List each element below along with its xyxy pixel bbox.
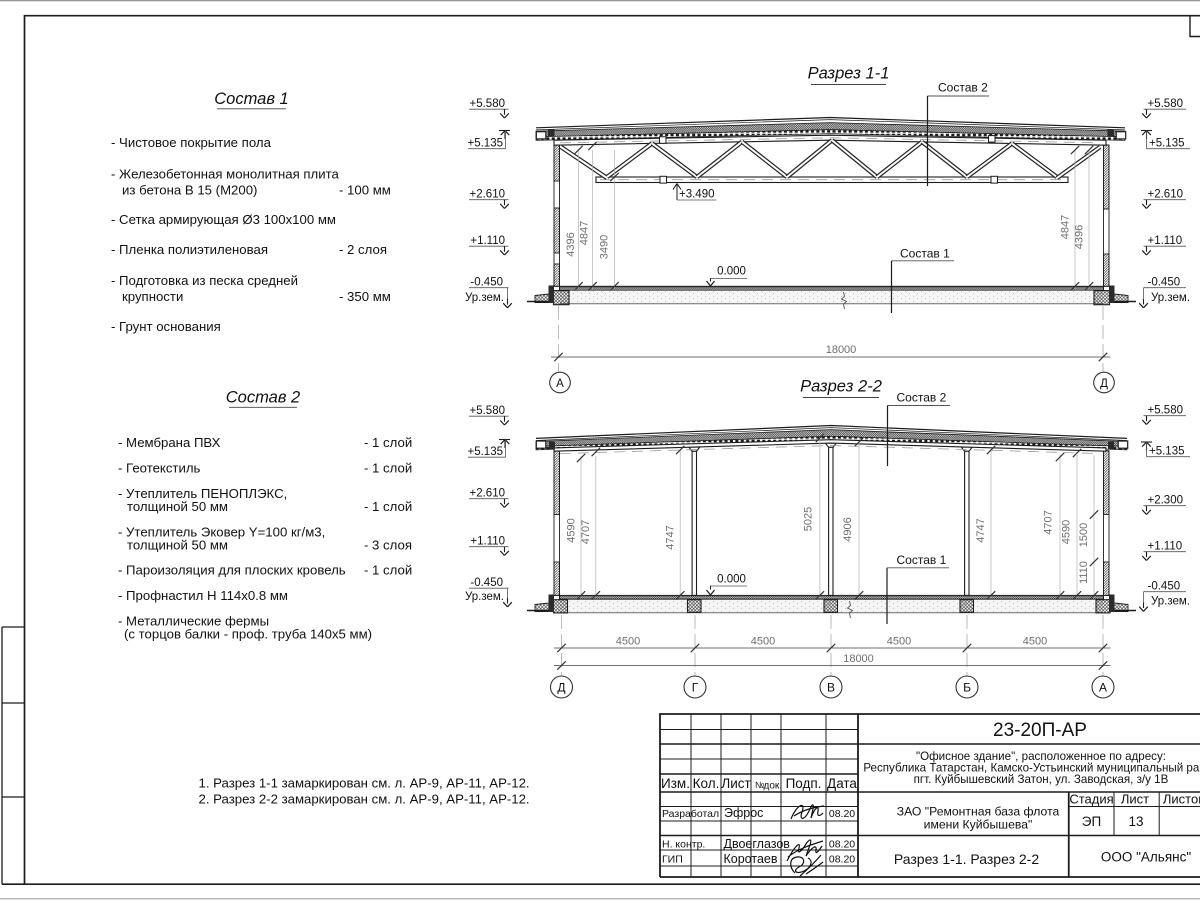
- svg-text:- 1 слой: - 1 слой: [364, 461, 412, 476]
- svg-text:- Грунт основания: - Грунт основания: [111, 319, 221, 334]
- svg-text:Изм.: Изм.: [661, 776, 690, 791]
- svg-text:- 100 мм: - 100 мм: [339, 183, 391, 198]
- svg-text:4396: 4396: [565, 232, 577, 256]
- svg-text:Разрез 2-2: Разрез 2-2: [800, 378, 882, 396]
- svg-text:+2.300: +2.300: [1148, 495, 1184, 507]
- svg-text:-0.450: -0.450: [1148, 277, 1181, 289]
- svg-text:Состав 1: Состав 1: [214, 90, 288, 108]
- svg-text:Стадия: Стадия: [1069, 792, 1113, 807]
- svg-text:Н. контр.: Н. контр.: [662, 839, 705, 851]
- svg-text:-0.450: -0.450: [470, 577, 503, 589]
- svg-text:- 1 слой: - 1 слой: [364, 563, 412, 578]
- svg-text:4747: 4747: [975, 518, 987, 542]
- svg-text:-0.450: -0.450: [470, 277, 503, 289]
- svg-text:Разработал: Разработал: [662, 808, 719, 820]
- svg-text:4590: 4590: [566, 518, 578, 542]
- svg-text:- 3 слоя: - 3 слоя: [364, 537, 412, 552]
- svg-text:1500: 1500: [1078, 523, 1090, 547]
- svg-text:- Подготовка из песка средней: - Подготовка из песка средней: [111, 273, 298, 288]
- svg-text:+1.110: +1.110: [1148, 235, 1183, 247]
- svg-text:+1.110: +1.110: [1148, 541, 1183, 553]
- svg-text:+2.610: +2.610: [470, 189, 506, 201]
- svg-text:+1.110: +1.110: [470, 235, 505, 247]
- svg-text:4500: 4500: [616, 636, 640, 648]
- svg-text:+1.110: +1.110: [470, 536, 505, 548]
- svg-text:Состав 1: Состав 1: [897, 553, 947, 567]
- svg-text:Г: Г: [692, 680, 699, 694]
- svg-text:4500: 4500: [887, 636, 911, 648]
- svg-text:08.20: 08.20: [829, 808, 855, 820]
- svg-text:Дата: Дата: [827, 776, 857, 791]
- svg-text:Двоеглазов: Двоеглазов: [724, 837, 791, 851]
- svg-text:- 1 слой: - 1 слой: [364, 499, 412, 514]
- svg-text:док.: док.: [764, 781, 783, 792]
- svg-text:(с торцов балки - проф. труба: (с торцов балки - проф. труба 140х5 мм): [124, 626, 372, 641]
- svg-text:18000: 18000: [826, 344, 857, 356]
- svg-text:1110: 1110: [1078, 561, 1090, 584]
- svg-text:3490: 3490: [599, 235, 611, 259]
- svg-text:Кол.: Кол.: [693, 776, 720, 791]
- svg-text:+3.490: +3.490: [679, 189, 715, 201]
- svg-text:08.20: 08.20: [829, 854, 855, 866]
- svg-text:+5.580: +5.580: [1148, 98, 1184, 110]
- svg-text:+5.135: +5.135: [1149, 446, 1185, 458]
- svg-text:- 1 слой: - 1 слой: [364, 435, 412, 450]
- svg-text:+5.135: +5.135: [1149, 138, 1185, 150]
- svg-text:Коротаев: Коротаев: [724, 852, 778, 866]
- svg-text:4500: 4500: [1023, 636, 1047, 648]
- svg-text:Листов: Листов: [1163, 792, 1200, 807]
- svg-text:08.20: 08.20: [829, 839, 855, 851]
- svg-text:ЗАО "Ремонтная база флота: ЗАО "Ремонтная база флота: [897, 805, 1060, 819]
- svg-text:- Геотекстиль: - Геотекстиль: [118, 461, 201, 476]
- svg-text:В: В: [827, 680, 835, 694]
- svg-text:ГИП: ГИП: [662, 854, 683, 866]
- svg-text:Эфрос: Эфрос: [724, 806, 763, 820]
- svg-text:+5.580: +5.580: [1148, 405, 1184, 417]
- svg-text:4747: 4747: [665, 525, 677, 549]
- svg-text:- 2 слоя: - 2 слоя: [339, 242, 387, 257]
- svg-text:4396: 4396: [1074, 225, 1086, 249]
- svg-text:4500: 4500: [751, 636, 775, 648]
- svg-text:толщиной 50 мм: толщиной 50 мм: [127, 537, 228, 552]
- svg-text:+5.580: +5.580: [470, 98, 506, 110]
- svg-text:Подп.: Подп.: [786, 776, 822, 791]
- svg-text:- Пленка полиэтиленовая: - Пленка полиэтиленовая: [111, 242, 268, 257]
- svg-text:имени Куйбышева": имени Куйбышева": [924, 818, 1033, 832]
- svg-text:пгт. Куйбышевский Затон, ул. З: пгт. Куйбышевский Затон, ул. Заводская, …: [914, 773, 1169, 786]
- svg-text:ООО "Альянс": ООО "Альянс": [1101, 850, 1191, 865]
- svg-text:5025: 5025: [803, 507, 815, 531]
- svg-text:- Пароизоляция для плоских кро: - Пароизоляция для плоских кровель: [118, 563, 346, 578]
- svg-text:крупности: крупности: [122, 289, 183, 304]
- svg-text:4906: 4906: [842, 517, 854, 541]
- svg-text:18000: 18000: [843, 653, 874, 665]
- svg-text:0.000: 0.000: [717, 574, 746, 586]
- svg-text:Ур.зем.: Ур.зем.: [1151, 596, 1190, 608]
- svg-text:Д: Д: [557, 680, 565, 694]
- svg-text:+5.580: +5.580: [470, 405, 506, 417]
- svg-text:Ур.зем.: Ур.зем.: [465, 591, 504, 603]
- svg-text:+2.610: +2.610: [1148, 189, 1184, 201]
- svg-text:+5.135: +5.135: [468, 138, 504, 150]
- svg-text:- Чистовое покрытие пола: - Чистовое покрытие пола: [111, 135, 272, 150]
- svg-text:- Профнастил Н 114х0.8 мм: - Профнастил Н 114х0.8 мм: [118, 588, 288, 603]
- svg-text:+2.610: +2.610: [470, 488, 506, 500]
- svg-text:2. Разрез 2-2 замаркирован см.: 2. Разрез 2-2 замаркирован см. л. АР-9, …: [199, 792, 530, 807]
- svg-text:из бетона В 15 (М200): из бетона В 15 (М200): [122, 183, 257, 198]
- svg-text:Б: Б: [963, 680, 971, 694]
- svg-text:Состав 2: Состав 2: [226, 389, 300, 407]
- svg-text:А: А: [556, 378, 564, 390]
- svg-text:- 350 мм: - 350 мм: [339, 289, 391, 304]
- svg-text:+5.135: +5.135: [468, 446, 504, 458]
- svg-text:- Железобетонная монолитная п: - Железобетонная монолитная плита: [111, 167, 340, 182]
- svg-text:4590: 4590: [1061, 520, 1073, 544]
- svg-text:Разрез 1-1: Разрез 1-1: [808, 65, 890, 83]
- svg-text:ЭП: ЭП: [1082, 814, 1101, 829]
- svg-text:- Мембрана ПВХ: - Мембрана ПВХ: [118, 435, 221, 450]
- svg-text:Д: Д: [1100, 378, 1108, 390]
- svg-text:Состав 2: Состав 2: [897, 391, 947, 405]
- svg-text:Состав 1: Состав 1: [900, 247, 950, 261]
- svg-text:13: 13: [1128, 814, 1143, 829]
- svg-text:толщиной 50 мм: толщиной 50 мм: [127, 499, 228, 514]
- svg-text:Лист: Лист: [1121, 792, 1149, 807]
- svg-text:1. Разрез 1-1 замаркирован см.: 1. Разрез 1-1 замаркирован см. л. АР-9, …: [199, 776, 530, 791]
- svg-text:4847: 4847: [579, 221, 591, 245]
- svg-text:Лист: Лист: [721, 776, 750, 791]
- svg-text:4707: 4707: [580, 520, 592, 544]
- svg-text:Ур.зем.: Ур.зем.: [1151, 292, 1190, 304]
- svg-text:4847: 4847: [1060, 215, 1072, 239]
- svg-text:Состав 2: Состав 2: [938, 81, 988, 95]
- svg-text:0.000: 0.000: [717, 266, 746, 278]
- svg-text:4707: 4707: [1043, 510, 1055, 534]
- svg-text:-0.450: -0.450: [1148, 581, 1181, 593]
- svg-text:Разрез 1-1. Разрез 2-2: Разрез 1-1. Разрез 2-2: [894, 851, 1039, 867]
- svg-text:А: А: [1099, 680, 1107, 694]
- svg-text:23-20П-АР: 23-20П-АР: [993, 720, 1087, 741]
- svg-text:Ур.зем.: Ур.зем.: [465, 292, 504, 304]
- svg-text:- Сетка армирующая Ø3 100х100: - Сетка армирующая Ø3 100х100 мм: [111, 212, 336, 227]
